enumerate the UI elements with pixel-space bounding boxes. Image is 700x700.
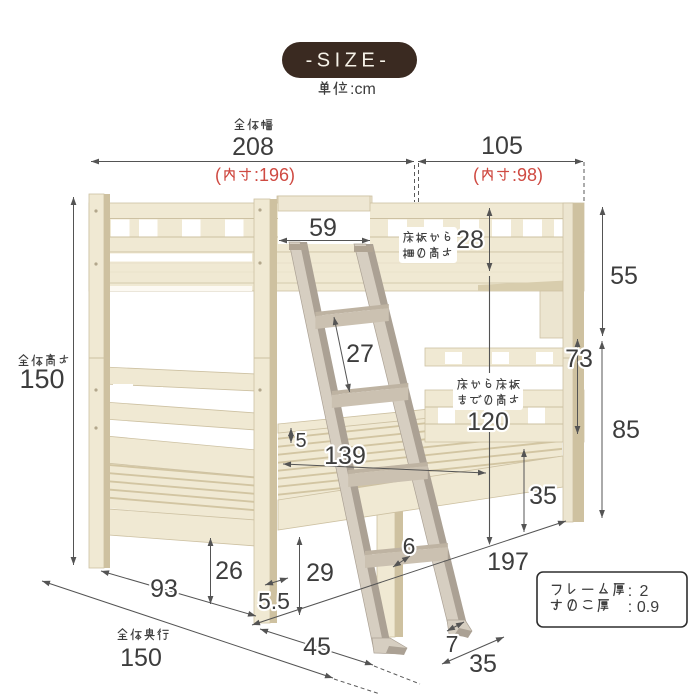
- svg-text::196): :196): [254, 165, 295, 185]
- svg-text:45: 45: [303, 633, 331, 661]
- svg-text:(: (: [215, 165, 221, 185]
- svg-text:-SIZE-: -SIZE-: [306, 50, 391, 72]
- svg-text:59: 59: [309, 214, 337, 242]
- svg-text:150: 150: [19, 364, 64, 394]
- svg-text:26: 26: [215, 557, 243, 585]
- svg-text:35: 35: [529, 482, 557, 510]
- svg-text::: :: [628, 583, 632, 600]
- svg-text:73: 73: [565, 345, 593, 373]
- svg-text:150: 150: [120, 644, 162, 672]
- svg-text:7: 7: [446, 631, 459, 657]
- svg-text:2: 2: [640, 583, 649, 600]
- svg-text:55: 55: [610, 262, 638, 290]
- svg-text:6: 6: [403, 533, 416, 559]
- svg-text:93: 93: [150, 575, 178, 603]
- svg-text:105: 105: [481, 132, 523, 160]
- svg-text:85: 85: [612, 416, 640, 444]
- svg-text:5: 5: [295, 430, 306, 452]
- svg-text:139: 139: [324, 442, 366, 470]
- svg-text:5.5: 5.5: [258, 588, 290, 614]
- svg-text:120: 120: [467, 408, 509, 436]
- svg-text::: :: [628, 599, 632, 616]
- svg-text::98): :98): [512, 165, 543, 185]
- svg-text:0.9: 0.9: [637, 599, 659, 616]
- svg-text:(: (: [473, 165, 479, 185]
- svg-text:197: 197: [487, 548, 529, 576]
- svg-text:35: 35: [469, 650, 497, 678]
- svg-text:208: 208: [232, 133, 274, 161]
- svg-text:27: 27: [346, 340, 374, 368]
- svg-text:29: 29: [306, 559, 334, 587]
- svg-text:28: 28: [456, 226, 484, 254]
- svg-text::cm: :cm: [350, 81, 376, 98]
